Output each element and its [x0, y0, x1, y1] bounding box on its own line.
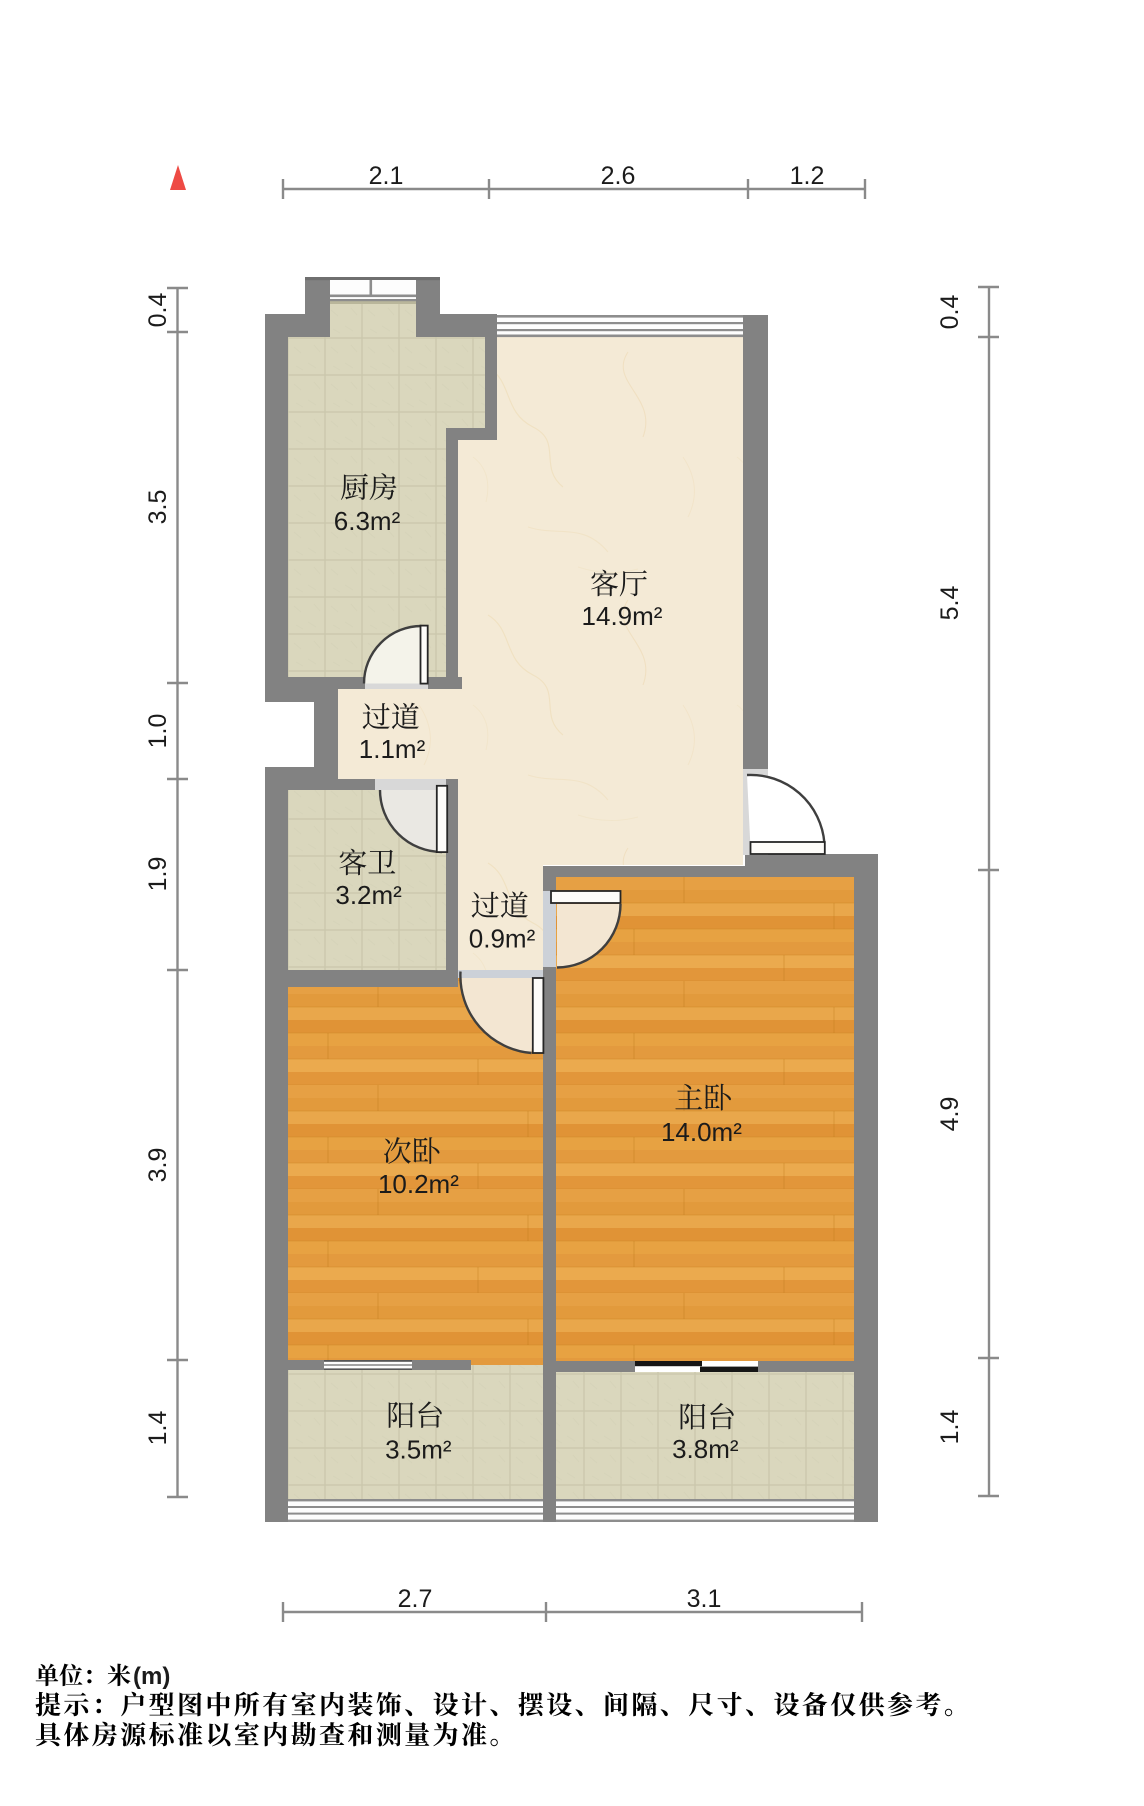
- svg-text:1.2: 1.2: [790, 162, 825, 190]
- svg-text:10.2m²: 10.2m²: [378, 1169, 459, 1199]
- svg-text:3.5: 3.5: [144, 490, 172, 525]
- svg-text:3.5m²: 3.5m²: [385, 1435, 452, 1465]
- svg-text:1.1m²: 1.1m²: [359, 734, 426, 764]
- svg-text:2.6: 2.6: [601, 162, 636, 190]
- svg-text:2.1: 2.1: [369, 162, 404, 190]
- svg-text:2.7: 2.7: [398, 1585, 433, 1613]
- svg-text:3.9: 3.9: [144, 1148, 172, 1183]
- svg-text:(m): (m): [133, 1663, 170, 1690]
- svg-text:3.2m²: 3.2m²: [335, 880, 402, 910]
- svg-text:4.9: 4.9: [936, 1097, 964, 1132]
- svg-text:6.3m²: 6.3m²: [334, 506, 401, 536]
- svg-text:0.4: 0.4: [144, 293, 172, 328]
- svg-text:1.9: 1.9: [144, 857, 172, 892]
- svg-text:1.0: 1.0: [144, 714, 172, 749]
- svg-text:0.4: 0.4: [936, 295, 964, 330]
- svg-text:5.4: 5.4: [936, 586, 964, 621]
- svg-text:0.9m²: 0.9m²: [469, 924, 536, 954]
- svg-text:1.4: 1.4: [936, 1410, 964, 1445]
- svg-text:3.1: 3.1: [687, 1585, 722, 1613]
- svg-text:14.0m²: 14.0m²: [661, 1117, 742, 1147]
- svg-text:14.9m²: 14.9m²: [582, 601, 663, 631]
- svg-text:3.8m²: 3.8m²: [672, 1434, 739, 1464]
- svg-text:1.4: 1.4: [144, 1411, 172, 1446]
